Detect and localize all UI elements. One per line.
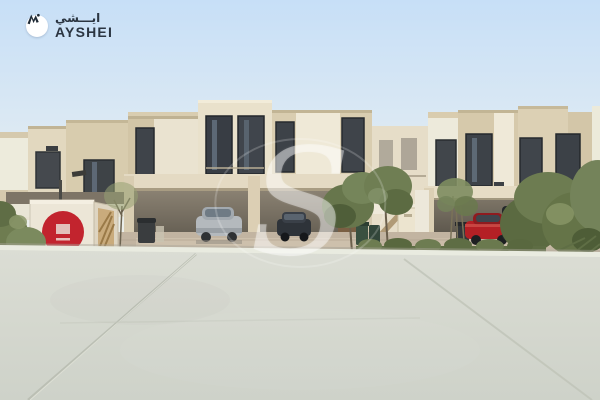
logo-latin-text: AYSHEI [55,25,113,40]
logo-texts: ايـــشي AYSHEI [55,12,113,39]
white-gate [415,190,429,236]
listing-photo: ايـــشي AYSHEI S [0,0,600,400]
ayshei-logomark-icon [26,12,41,26]
concrete-forecourt [0,243,600,400]
logo-arabic-text: ايـــشي [55,12,113,25]
photo-scene [0,0,600,400]
window [36,152,60,188]
wall-light [46,146,58,151]
logo-badge [26,15,48,37]
brand-watermark: ايـــشي AYSHEI [26,12,113,39]
